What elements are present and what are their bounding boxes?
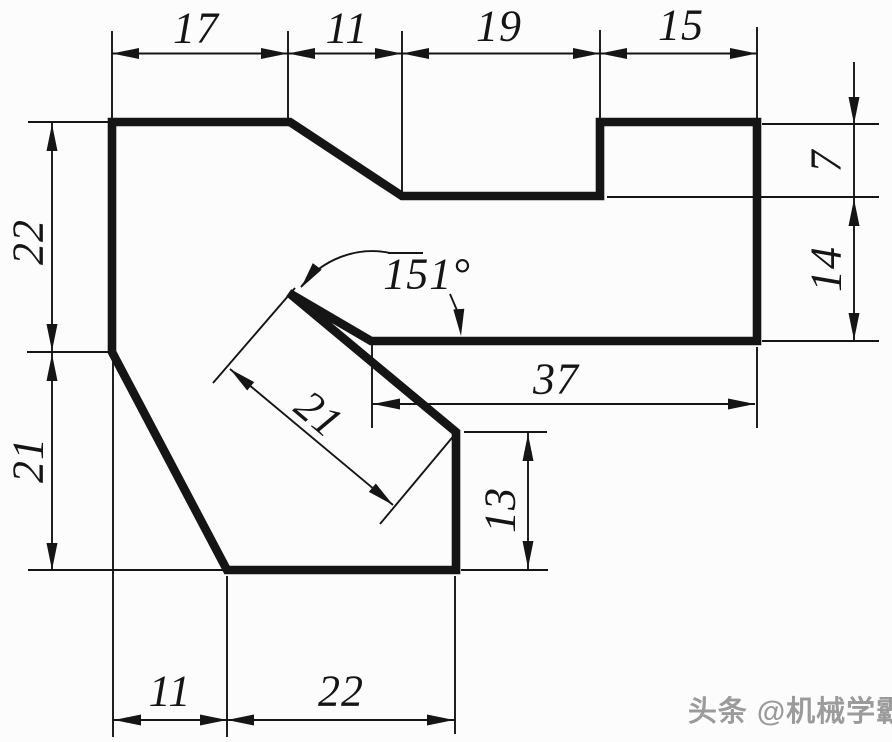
drawing-page: 17 11 19 15 22 21 7 14 37 151° 21 13 11 … [0, 0, 892, 742]
dim-label-bottom-11: 11 [149, 667, 192, 716]
dim-label-right-14: 14 [802, 246, 851, 292]
dim-label-top-19: 19 [476, 2, 522, 51]
watermark-text: 头条 @机械学霸 [688, 694, 892, 728]
dim-label-top-15: 15 [658, 1, 704, 50]
engineering-drawing-canvas: 17 11 19 15 22 21 7 14 37 151° 21 13 11 … [0, 0, 892, 742]
dim-label-angle-151: 151° [383, 250, 471, 299]
dim-label-bottom-22: 22 [318, 667, 364, 716]
dim-label-right-7: 7 [802, 149, 851, 173]
watermark: 头条 @机械学霸 头条 @机械学霸 [688, 694, 892, 731]
dim-label-top-17: 17 [173, 4, 220, 53]
drawing-background [0, 0, 892, 742]
dim-label-left-21: 21 [4, 437, 53, 483]
dim-label-37: 37 [532, 355, 580, 404]
dim-label-13: 13 [476, 487, 525, 533]
dim-label-top-11: 11 [326, 4, 369, 53]
dim-label-left-22: 22 [4, 219, 53, 265]
